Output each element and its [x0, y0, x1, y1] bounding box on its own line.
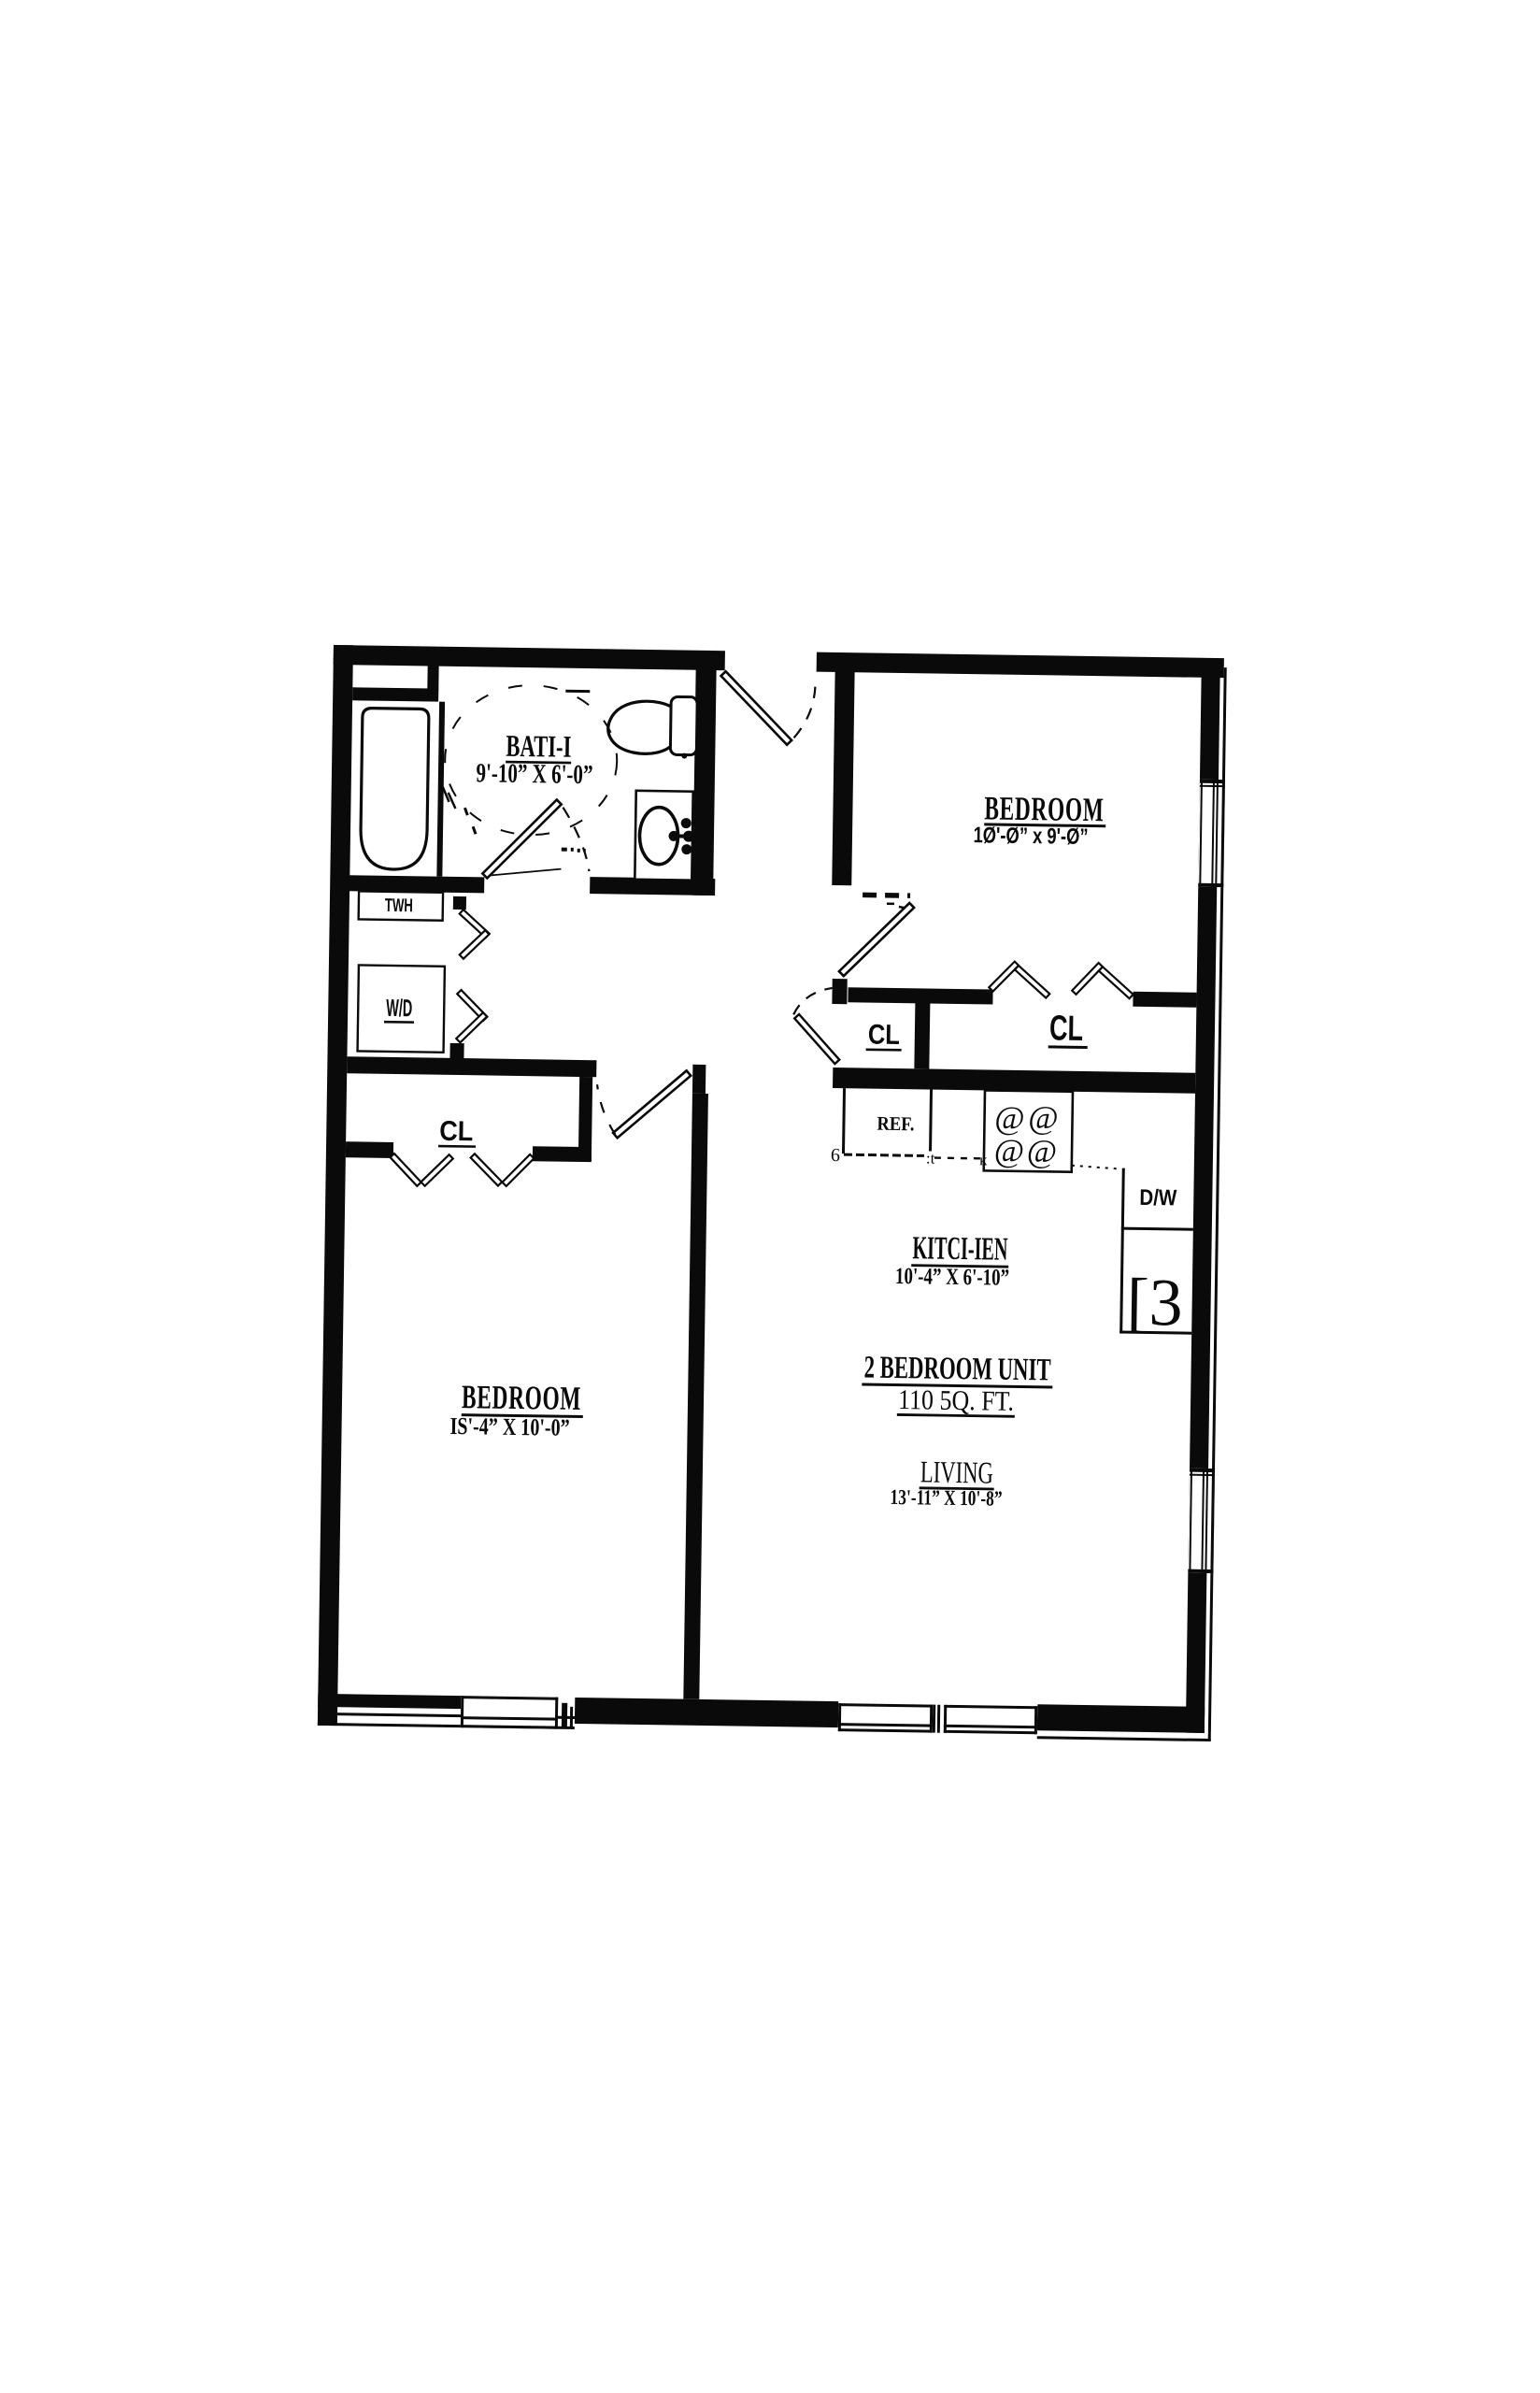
- svg-text:CL: CL: [868, 1020, 900, 1052]
- svg-text:W/D: W/D: [386, 994, 412, 1022]
- svg-text:BEDROOM: BEDROOM: [462, 1378, 582, 1417]
- svg-text:10'-4” X 6'-10”: 10'-4” X 6'-10”: [895, 1264, 1009, 1291]
- svg-text:@: @: [1027, 1133, 1058, 1169]
- svg-text:CL: CL: [1049, 1009, 1084, 1049]
- svg-text::t: :t: [926, 1149, 935, 1167]
- svg-text:@: @: [994, 1100, 1025, 1137]
- svg-text:2 BEDROOM UNIT: 2 BEDROOM UNIT: [863, 1351, 1051, 1388]
- svg-text:D/W: D/W: [1139, 1185, 1177, 1211]
- svg-text:13'-11” X 10'-8”: 13'-11” X 10'-8”: [890, 1485, 1002, 1511]
- svg-text:[3: [3: [1126, 1265, 1183, 1340]
- svg-text:1Ø'-Ø” x 9'-Ø”: 1Ø'-Ø” x 9'-Ø”: [973, 823, 1088, 850]
- svg-text:@: @: [994, 1133, 1025, 1169]
- svg-text:REF.: REF.: [877, 1112, 914, 1136]
- svg-text:KITCI-IEN: KITCI-IEN: [912, 1229, 1008, 1268]
- svg-text:6: 6: [831, 1145, 840, 1166]
- svg-text:110 5Q. FT.: 110 5Q. FT.: [898, 1384, 1014, 1417]
- svg-text:CL: CL: [439, 1116, 473, 1148]
- svg-text:9'-10” X 6'-0”: 9'-10” X 6'-0”: [476, 758, 592, 790]
- svg-text:IS'-4” X 10'-0”: IS'-4” X 10'-0”: [449, 1412, 569, 1441]
- svg-text:@: @: [1028, 1099, 1059, 1136]
- svg-text:TWH: TWH: [385, 896, 413, 916]
